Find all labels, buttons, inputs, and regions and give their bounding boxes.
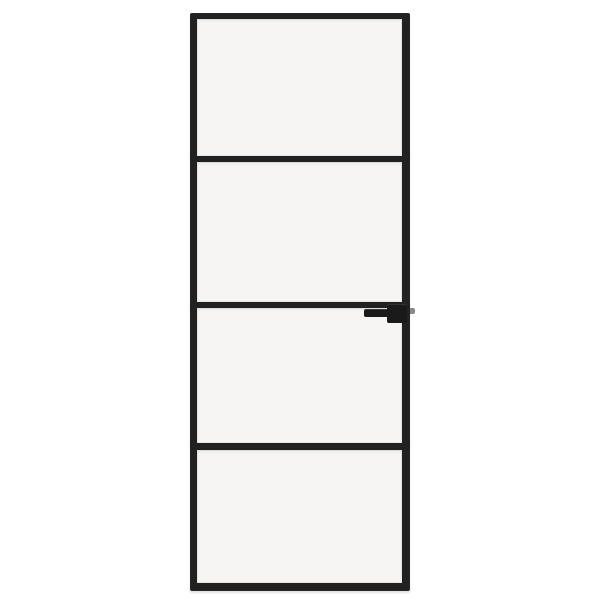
- glass-pane-3: [197, 308, 402, 443]
- glass-pane-2: [197, 162, 402, 302]
- product-photo-canvas: [0, 0, 600, 600]
- glass-pane-1: [197, 19, 402, 156]
- door-handle-base: [387, 304, 407, 323]
- door-latch-pin: [410, 308, 415, 314]
- muntin-bar-1: [190, 156, 410, 162]
- glass-door: [190, 13, 410, 591]
- muntin-bar-3: [190, 443, 410, 450]
- muntin-bar-2: [190, 302, 410, 308]
- glass-pane-4: [197, 450, 402, 583]
